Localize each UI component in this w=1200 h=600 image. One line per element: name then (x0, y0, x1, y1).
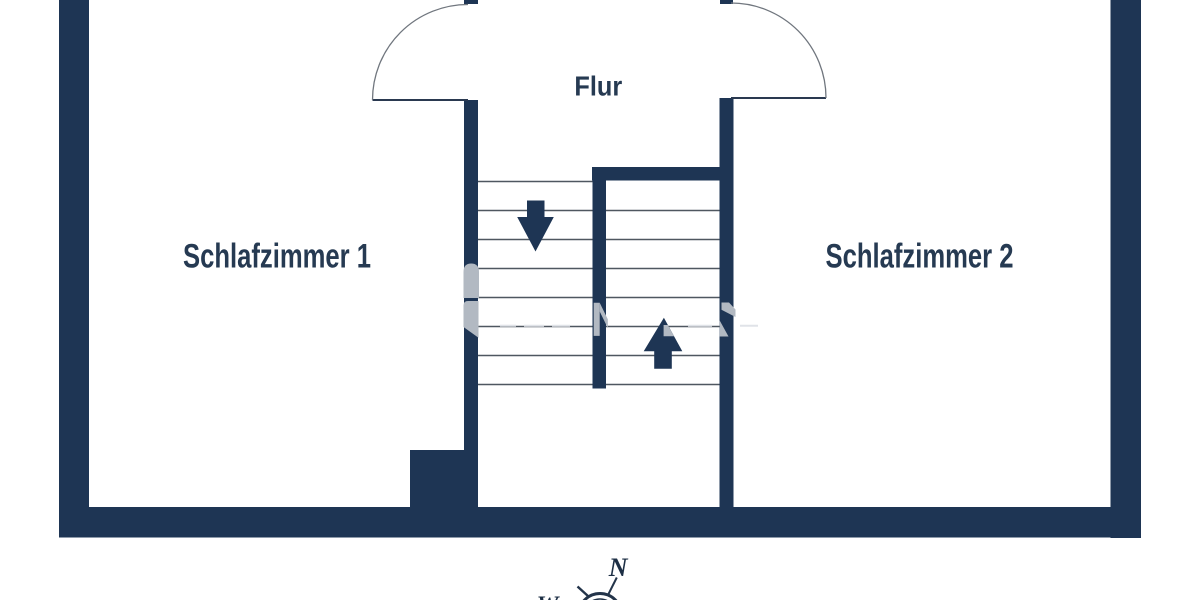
svg-text:Schlafzimmer 1: Schlafzimmer 1 (183, 237, 371, 276)
svg-text:N: N (608, 553, 629, 582)
svg-text:W: W (537, 592, 561, 600)
svg-text:Schlafzimmer 2: Schlafzimmer 2 (825, 237, 1013, 276)
svg-text:Flur: Flur (574, 71, 622, 102)
